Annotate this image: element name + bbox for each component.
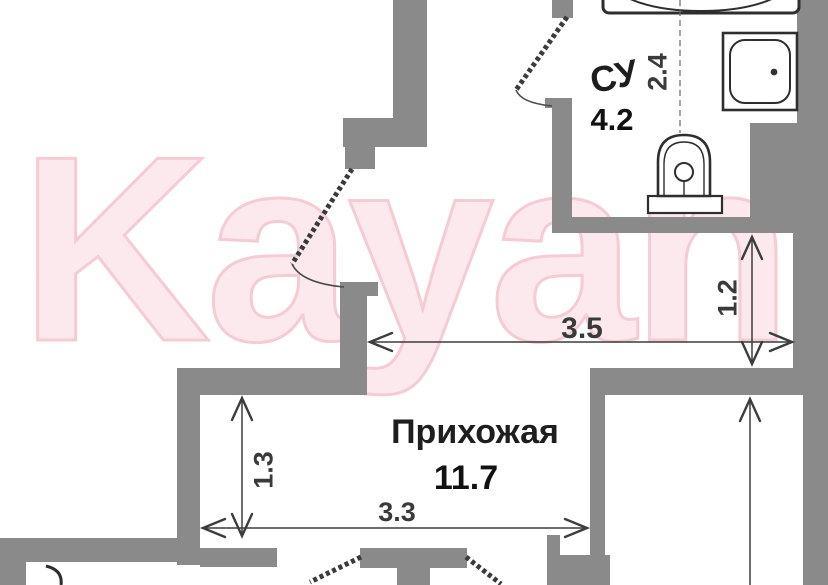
doors (46, 17, 567, 585)
wall-segment (590, 368, 605, 565)
door-swing-arc (46, 566, 61, 585)
door-leaf (310, 557, 361, 582)
wall-segment (200, 548, 277, 567)
dimension-lower-right (740, 399, 760, 585)
wall-segment (552, 0, 573, 18)
dimension-hallway-bottom-width: 3.3 (203, 497, 587, 537)
wall-segment (177, 368, 367, 395)
wall-segment (0, 538, 26, 585)
dimensions: 2.4 1.2 3.5 1.3 (203, 0, 792, 585)
wall-segment (803, 395, 828, 585)
dimension-label-2-4: 2.4 (642, 53, 672, 91)
dimension-label-3-5: 3.5 (561, 312, 603, 345)
wall-segment (397, 568, 430, 585)
dimension-niche-height: 1.2 (712, 237, 762, 364)
wall-segment (590, 368, 828, 395)
dimension-corridor-width: 3.5 (370, 312, 792, 351)
wall-segment (343, 118, 427, 147)
dimension-hallway-left-height: 1.3 (232, 398, 278, 536)
dimension-label-3-3: 3.3 (378, 497, 416, 527)
dimension-label-1-3: 1.3 (248, 451, 278, 489)
room-label-hallway: Прихожая (391, 413, 559, 451)
room-label-bathroom: СУ (586, 51, 642, 101)
door-leaf (516, 17, 567, 90)
bathtub-icon (603, 0, 799, 13)
room-area-bathroom: 4.2 (590, 102, 633, 137)
door-leaf (466, 557, 501, 584)
wall-segment (360, 548, 467, 568)
dimension-bathroom-width: 2.4 (642, 0, 680, 133)
wall-segment (557, 217, 760, 233)
door-leaf (292, 169, 352, 264)
wall-segment (552, 98, 572, 233)
wall-segment (177, 368, 200, 565)
wall-segment (797, 0, 828, 123)
room-area-hallway: 11.7 (434, 459, 498, 497)
dimension-label-1-2: 1.2 (712, 279, 742, 317)
door-swing-arc (292, 264, 344, 287)
wall-segment (345, 147, 375, 169)
shower-icon (723, 33, 797, 110)
wall-segment (0, 538, 200, 562)
floor-plan: Kayan (0, 0, 828, 585)
wall-segment (750, 123, 828, 233)
toilet-icon (648, 135, 722, 213)
floor-plan-drawing: 2.4 1.2 3.5 1.3 (0, 0, 828, 585)
